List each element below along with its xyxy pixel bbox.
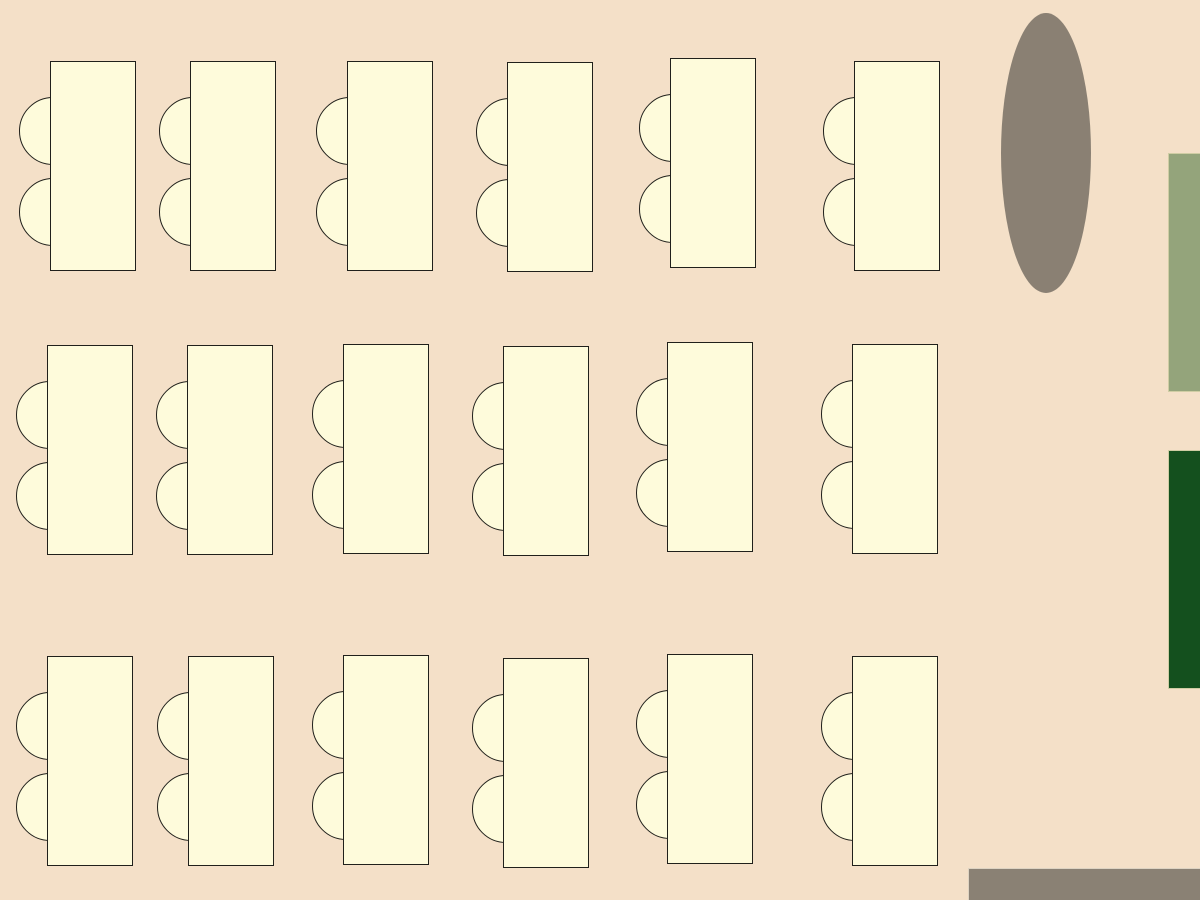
desk-with-chairs-r1-c3[interactable]: [316, 61, 433, 271]
desk-table[interactable]: [50, 61, 136, 271]
desk-with-chairs-r3-c2[interactable]: [157, 656, 274, 866]
desk-with-chairs-r2-c6[interactable]: [821, 344, 938, 554]
desk-table[interactable]: [852, 344, 938, 554]
desk-table[interactable]: [187, 345, 273, 555]
desk-table[interactable]: [343, 344, 429, 554]
desk-with-chairs-r3-c4[interactable]: [472, 658, 589, 868]
desk-table[interactable]: [343, 655, 429, 865]
desk-with-chairs-r3-c3[interactable]: [312, 655, 429, 865]
desk-with-chairs-r1-c6[interactable]: [823, 61, 940, 271]
desk-with-chairs-r3-c1[interactable]: [16, 656, 133, 866]
desk-with-chairs-r3-c6[interactable]: [821, 656, 938, 866]
desk-table[interactable]: [47, 345, 133, 555]
desk-table[interactable]: [667, 342, 753, 552]
desk-with-chairs-r2-c4[interactable]: [472, 346, 589, 556]
classroom-floor-plan: [0, 0, 1200, 900]
desk-with-chairs-r1-c4[interactable]: [476, 62, 593, 272]
desk-table[interactable]: [670, 58, 756, 268]
desk-table[interactable]: [47, 656, 133, 866]
desk-table[interactable]: [347, 61, 433, 271]
desk-table[interactable]: [503, 346, 589, 556]
desk-table[interactable]: [507, 62, 593, 272]
desk-with-chairs-r2-c1[interactable]: [16, 345, 133, 555]
desk-table[interactable]: [188, 656, 274, 866]
desk-table[interactable]: [852, 656, 938, 866]
oval-table[interactable]: [1001, 13, 1091, 293]
desk-table[interactable]: [190, 61, 276, 271]
sage-green-shelf[interactable]: [1168, 153, 1200, 392]
desk-table[interactable]: [503, 658, 589, 868]
desk-with-chairs-r1-c5[interactable]: [639, 58, 756, 268]
desk-table[interactable]: [667, 654, 753, 864]
desk-with-chairs-r2-c5[interactable]: [636, 342, 753, 552]
desk-with-chairs-r1-c2[interactable]: [159, 61, 276, 271]
desk-with-chairs-r2-c3[interactable]: [312, 344, 429, 554]
gray-counter-bar[interactable]: [968, 868, 1200, 900]
desk-table[interactable]: [854, 61, 940, 271]
dark-green-board[interactable]: [1168, 450, 1200, 689]
desk-with-chairs-r3-c5[interactable]: [636, 654, 753, 864]
desk-with-chairs-r2-c2[interactable]: [156, 345, 273, 555]
desk-with-chairs-r1-c1[interactable]: [19, 61, 136, 271]
